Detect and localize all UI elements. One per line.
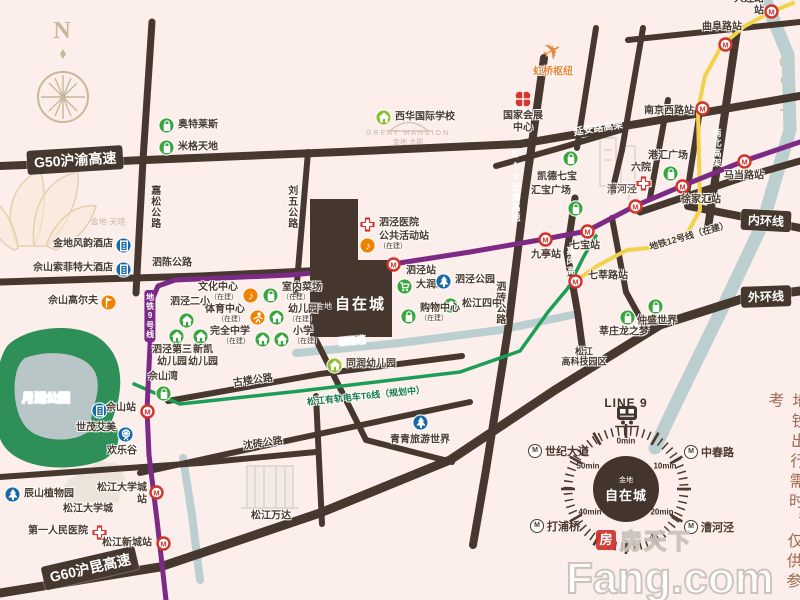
metro-mini-icon: M xyxy=(528,444,542,458)
metro-mini-icon: M xyxy=(684,445,698,459)
clock-station-世纪大道: M世纪大道 xyxy=(528,443,589,459)
metro-station-icon-曲阜路站[interactable]: M xyxy=(718,37,733,52)
metro-station-icon-南京西路站[interactable]: M xyxy=(695,101,710,116)
poi-label: 米格天地 xyxy=(178,141,218,153)
svg-text:M: M xyxy=(390,260,396,269)
poi-label: 幼儿园（在建） xyxy=(288,304,318,324)
svg-text:M: M xyxy=(741,157,747,166)
metro-station-icon-佘山站[interactable]: M xyxy=(140,404,155,419)
poi-label: 金地风韵酒店 xyxy=(53,238,113,250)
road-banner: 内环线 xyxy=(740,209,791,233)
poi-building-icon[interactable] xyxy=(91,402,108,419)
area-label: 松江 高科技园区 xyxy=(561,347,606,368)
poi-label: 六院 xyxy=(631,162,651,174)
poi-label: 购物中心（在建） xyxy=(420,303,460,323)
poi-label: 佘山湾 xyxy=(148,371,178,383)
svg-text:M: M xyxy=(768,7,774,16)
poi-label: 凯德七宝 xyxy=(537,171,577,183)
svg-text:M: M xyxy=(542,235,548,244)
poi-label: 国家会展 中心 xyxy=(503,111,543,134)
poi-label: 港汇广场 xyxy=(648,150,688,162)
street-label: 嘉松公路 xyxy=(148,185,160,229)
metro-station-icon-七莘路站[interactable]: M xyxy=(568,274,583,289)
station-label: 七宝站 xyxy=(570,240,600,252)
poi-home-icon[interactable] xyxy=(178,312,195,329)
svg-text:M: M xyxy=(699,104,705,113)
metro-station-icon-马当路站[interactable]: M xyxy=(737,154,752,169)
poi-label: 泗泾公园 xyxy=(455,274,495,286)
poi-label: 小学（在建） xyxy=(293,326,321,346)
clock-center-name: 自在城 xyxy=(605,485,647,504)
onroad-label: 南北高架 xyxy=(711,128,724,168)
station-label: 南京西路站 xyxy=(644,105,694,117)
station-label: 徐家汇站 xyxy=(681,194,721,206)
poi-label: 世茂艾美 xyxy=(76,422,116,434)
park-label: 月湖公园 xyxy=(22,392,70,406)
svg-text:♪: ♪ xyxy=(365,240,371,252)
poi-tree-icon[interactable] xyxy=(412,414,429,431)
svg-text:M: M xyxy=(679,182,685,191)
street-label: 刘五公路 xyxy=(285,185,297,229)
station-label: 松江新城站 xyxy=(102,537,152,549)
fang-watermark: 房 房天下 Fang.com xyxy=(566,524,800,600)
station-label: 七莘路站 xyxy=(588,270,628,282)
project-brand: 金地 xyxy=(316,301,332,312)
clock-tick-label: 40min xyxy=(578,508,601,517)
area-label: 松江万达 xyxy=(251,510,291,522)
clock-center-logo: 金地 自在城 xyxy=(593,456,659,522)
poi-label: 虹桥枢纽 xyxy=(533,66,573,78)
poi-bag-icon[interactable] xyxy=(262,287,279,304)
watermark-label: 金地·大郡 xyxy=(393,139,423,147)
poi-label: 新凯 幼儿园 xyxy=(188,345,218,368)
poi-label: 松江四中 xyxy=(462,298,502,310)
poi-home-icon[interactable] xyxy=(273,331,290,348)
poi-cart-icon[interactable] xyxy=(396,278,413,295)
svg-text:M: M xyxy=(144,407,150,416)
station-label: 佘山站 xyxy=(106,402,136,414)
poi-flag-icon[interactable] xyxy=(100,294,117,311)
poi-label: 西华国际学校 xyxy=(395,111,455,123)
poi-label: 奥特莱斯 xyxy=(178,119,218,131)
svg-text:M: M xyxy=(153,488,159,497)
poi-music-icon[interactable]: ♪ xyxy=(242,287,259,304)
poi-clover-icon[interactable] xyxy=(513,89,533,109)
station-label: 马当路站 xyxy=(724,170,764,182)
svg-text:M: M xyxy=(572,277,578,286)
station-label: 大连路站 xyxy=(728,0,764,17)
station-label: 九亭站 xyxy=(531,249,561,261)
watermark-label: GREAT MANSION xyxy=(366,130,450,138)
poi-label: 泗泾医院 xyxy=(379,217,419,229)
onroad-label: G15沈海高速 xyxy=(510,150,523,223)
fang-logo-icon: 房 xyxy=(596,530,616,550)
poi-building-icon[interactable] xyxy=(115,261,132,278)
poi-home-icon[interactable] xyxy=(268,309,285,326)
clock-station-中春路: M中春路 xyxy=(684,444,734,460)
station-label: 松江大学城站 xyxy=(95,483,147,506)
area-label: 漕河泾 xyxy=(607,184,637,196)
poi-home-icon[interactable] xyxy=(254,331,271,348)
project-logo[interactable]: 金地 自在城 xyxy=(312,292,390,314)
poi-label: 佘山索菲特大酒店 xyxy=(33,262,113,274)
station-label: 泗泾站 xyxy=(406,265,436,277)
poi-label: 第一人民医院 xyxy=(28,525,88,537)
poi-label: 泗泾二小 xyxy=(170,296,210,308)
poi-bag-icon[interactable] xyxy=(155,385,172,402)
svg-text:M: M xyxy=(722,40,728,49)
poi-label: 仲盛世界 xyxy=(637,315,677,327)
poi-tree-icon[interactable] xyxy=(435,273,452,290)
project-name: 自在城 xyxy=(335,293,386,314)
poi-bag-icon[interactable] xyxy=(619,309,636,326)
station-label: 曲阜路站 xyxy=(702,21,742,33)
poi-label: 青青旅游世界 xyxy=(390,434,450,446)
poi-tree-icon[interactable] xyxy=(4,486,21,503)
metro-mini-icon: M xyxy=(530,519,544,533)
poi-label: 公共活动站（在建） xyxy=(379,231,429,251)
road-banner: 外环线 xyxy=(741,285,792,308)
fang-cn: 房天下 xyxy=(620,524,692,556)
svg-text:M: M xyxy=(584,227,590,236)
svg-text:M: M xyxy=(632,202,638,211)
poi-label: 体育中心（在建） xyxy=(205,304,245,324)
metro-station-icon-泗泾站[interactable]: M xyxy=(386,257,401,272)
poi-ferris-icon[interactable] xyxy=(117,426,134,443)
poi-label: 佘山高尔夫 xyxy=(48,295,98,307)
street-label: 泗陈公路 xyxy=(152,257,192,269)
poi-bag-icon[interactable] xyxy=(567,200,584,217)
poi-home-icon[interactable] xyxy=(375,109,392,126)
poi-label: 莘庄龙之梦 xyxy=(599,326,649,338)
clock-tick-label: 50min xyxy=(576,462,599,471)
poi-label: 汇宝广场 xyxy=(531,185,571,197)
line9-label: 地铁9号线 xyxy=(144,290,155,342)
poi-bag-icon[interactable] xyxy=(400,308,417,325)
svg-text:♪: ♪ xyxy=(248,290,254,302)
poi-bag-icon[interactable] xyxy=(158,117,175,134)
svg-text:M: M xyxy=(160,539,166,548)
poi-cross-icon[interactable] xyxy=(359,216,376,233)
poi-label: 同润幼儿园 xyxy=(346,358,396,370)
poi-label: 辰山植物园 xyxy=(24,488,74,500)
poi-label: 室内菜场（在建） xyxy=(282,282,322,302)
poi-music-icon[interactable]: ♪ xyxy=(359,237,376,254)
poi-bag-icon[interactable] xyxy=(562,150,579,167)
metro-station-icon-松江新城站[interactable]: M xyxy=(156,536,171,551)
poi-label: 欢乐谷 xyxy=(107,445,137,457)
poi-home-icon[interactable] xyxy=(168,328,185,345)
poi-label: 完全中学（在建） xyxy=(210,326,250,346)
watermark-label: 金地·天境 xyxy=(91,217,126,226)
metro-station-icon-七宝站[interactable]: M xyxy=(580,224,595,239)
metro-station-icon[interactable]: M xyxy=(628,199,643,214)
poi-home-icon[interactable] xyxy=(326,357,343,374)
poi-bag-icon[interactable] xyxy=(647,298,664,315)
metro-station-icon-徐家汇站[interactable]: M xyxy=(675,179,690,194)
fang-en: Fang.com xyxy=(566,556,800,600)
clock-tick-label: 0min xyxy=(617,437,636,446)
poi-home-icon[interactable] xyxy=(192,328,209,345)
poi-bag-icon[interactable] xyxy=(158,139,175,156)
metro-station-icon-九亭站[interactable]: M xyxy=(538,232,553,247)
metro-station-icon-松江大学城站[interactable]: M xyxy=(149,485,164,500)
poi-cross-icon[interactable] xyxy=(635,175,652,192)
poi-sport-icon[interactable] xyxy=(249,309,266,326)
poi-building-icon[interactable] xyxy=(115,237,132,254)
clock-center-brand: 金地 xyxy=(619,475,633,485)
location-map: N 金地 自在城 G50沪渝高速G60沪昆高速内环线外环线延安路高架G15沈海高… xyxy=(0,0,800,600)
clock-tick-label: 10min xyxy=(653,462,676,471)
clock-tick-label: 20min xyxy=(650,508,673,517)
poi-plane-icon[interactable]: ✈ xyxy=(539,38,565,64)
poi-label: 泗泾第三 幼儿园 xyxy=(152,345,192,368)
metro-station-icon-大连路站[interactable]: M xyxy=(764,4,779,19)
